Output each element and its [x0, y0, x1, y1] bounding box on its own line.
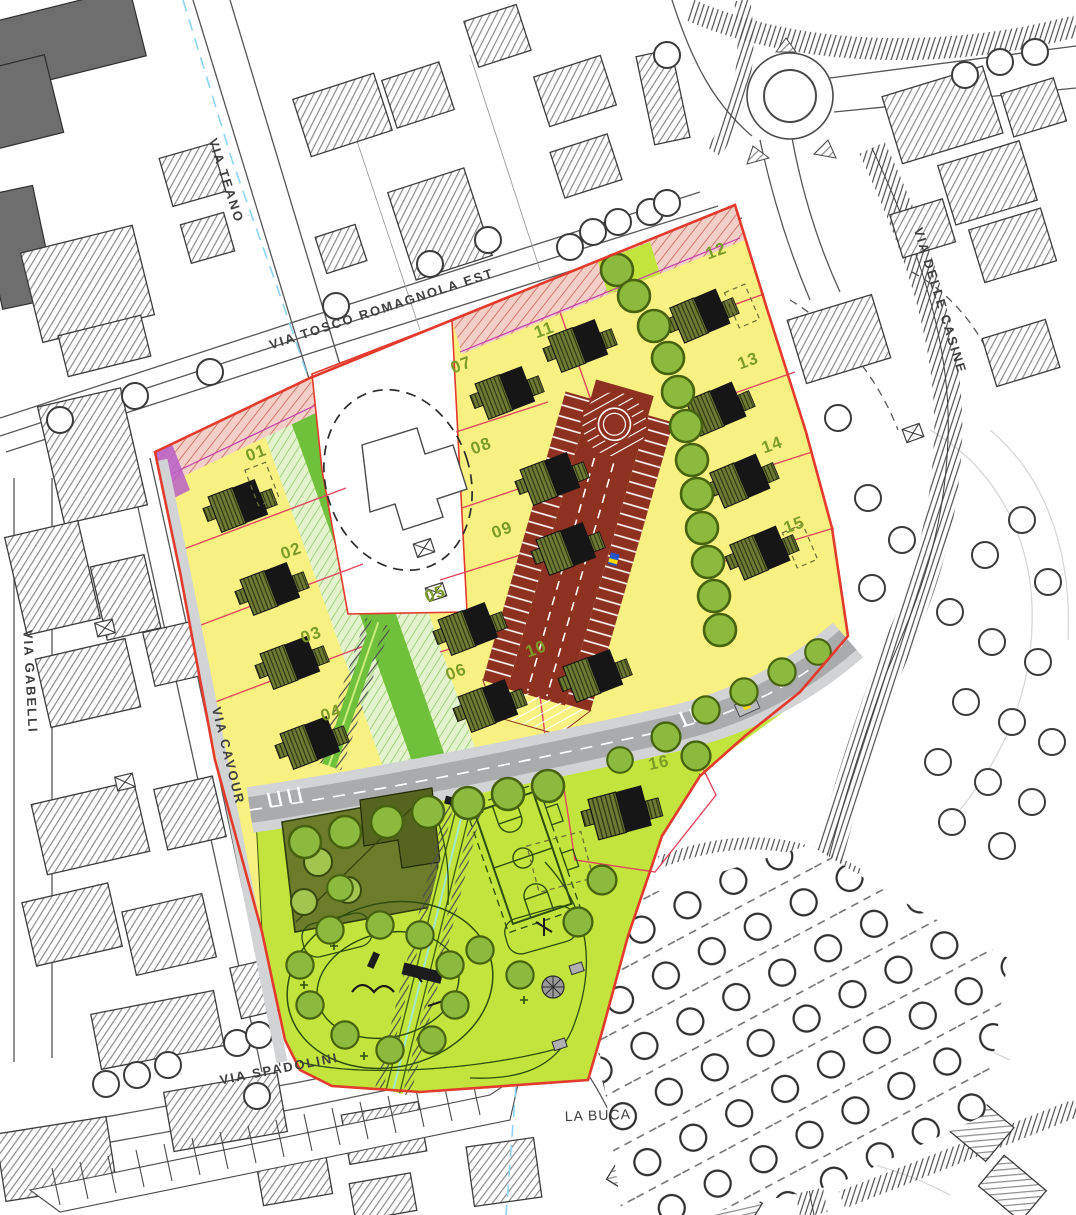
- street-label-via-gabelli: VIA GABELLI: [20, 630, 40, 735]
- place-label-la-buca: LA BUCA: [564, 1106, 631, 1124]
- plan-svg: VIA TEANO VIA TOSCO ROMAGNOLA EST VIA GA…: [0, 0, 1076, 1215]
- roundabout: [747, 38, 836, 164]
- urban-plan-map: VIA TEANO VIA TOSCO ROMAGNOLA EST VIA GA…: [0, 0, 1076, 1215]
